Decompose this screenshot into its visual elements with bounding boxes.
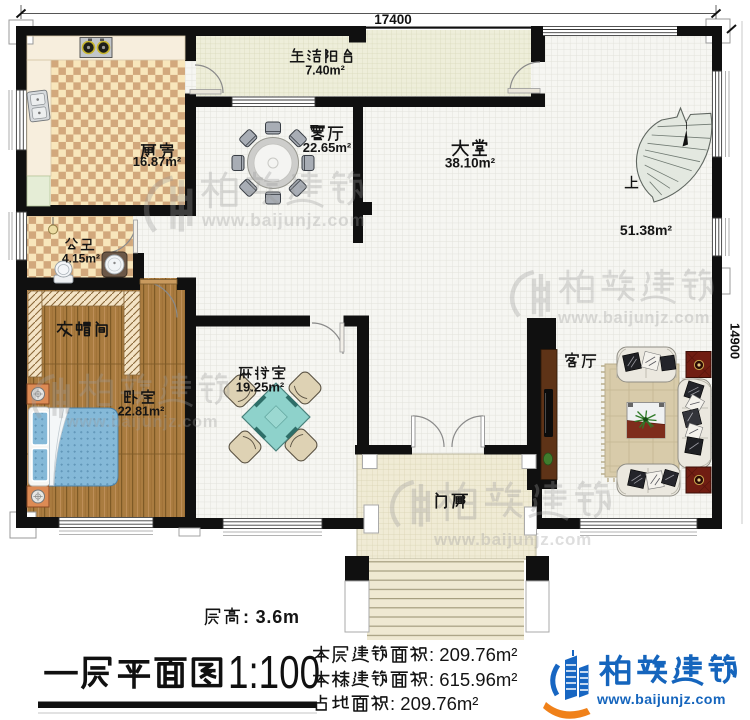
svg-text:14900: 14900 xyxy=(728,323,743,359)
svg-text:: 615.96m²: : 615.96m² xyxy=(429,669,517,690)
svg-text:7.40m²: 7.40m² xyxy=(305,64,345,78)
svg-text:22.65m²: 22.65m² xyxy=(303,140,352,155)
svg-text:22.81m²: 22.81m² xyxy=(118,405,165,419)
svg-text:19.25m²: 19.25m² xyxy=(236,380,285,395)
svg-text:17400: 17400 xyxy=(374,12,412,27)
svg-text:www.baijunjz.com: www.baijunjz.com xyxy=(201,210,366,230)
svg-text:www.baijunjz.com: www.baijunjz.com xyxy=(433,530,592,549)
svg-text:: 209.76m²: : 209.76m² xyxy=(429,644,517,665)
svg-text:www.baijunjz.com: www.baijunjz.com xyxy=(557,309,710,327)
svg-text:4.15m²: 4.15m² xyxy=(62,252,100,266)
svg-text:: 3.6m: : 3.6m xyxy=(243,607,300,627)
svg-text:www.baijunjz.com: www.baijunjz.com xyxy=(596,692,726,708)
svg-text:: 209.76m²: : 209.76m² xyxy=(390,693,478,714)
svg-text:51.38m²: 51.38m² xyxy=(620,222,672,238)
svg-text:1:100: 1:100 xyxy=(228,646,320,698)
svg-text:16.87m²: 16.87m² xyxy=(133,154,182,169)
svg-text:38.10m²: 38.10m² xyxy=(445,156,496,171)
